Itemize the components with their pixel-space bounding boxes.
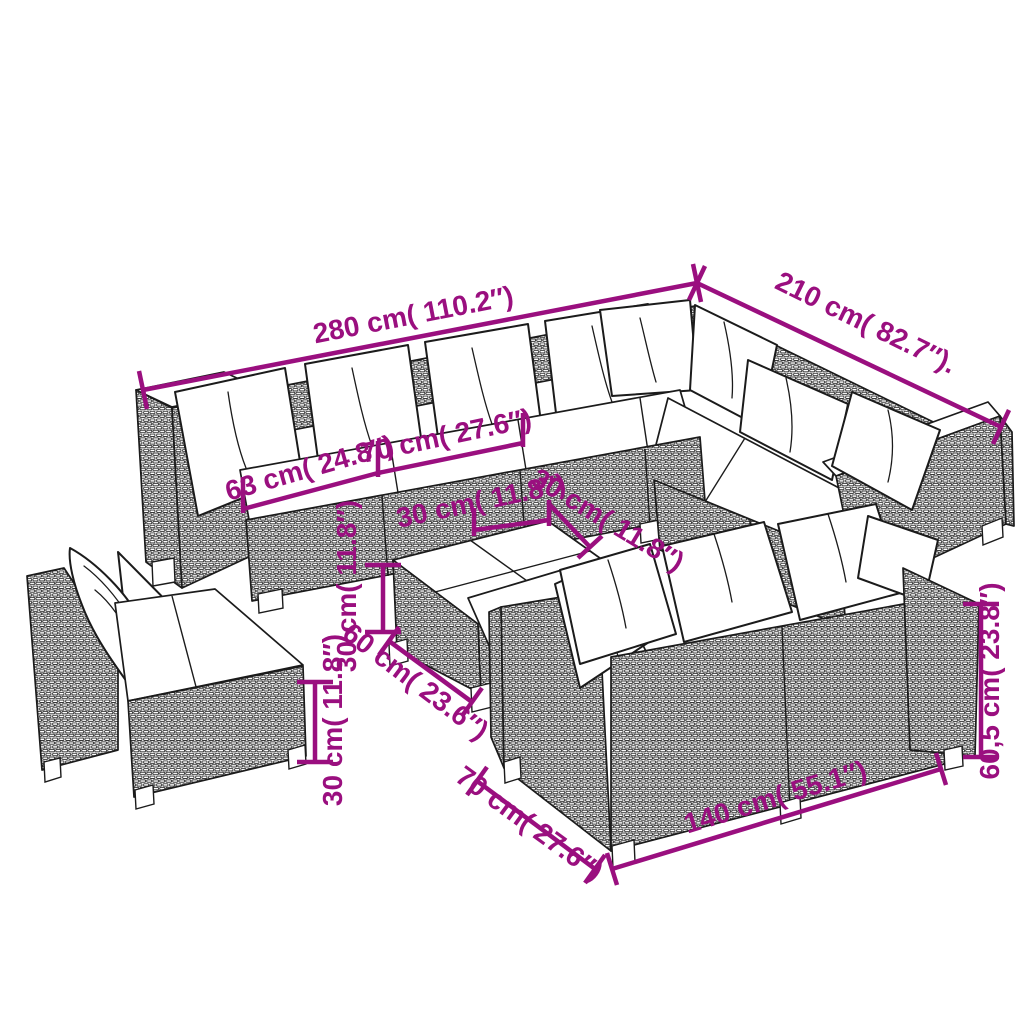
sofa-foot xyxy=(258,589,283,613)
dimension-diagram-page: 280 cm( 110.2″) 210 cm( 82.7″). 63 cm( 2… xyxy=(0,0,1024,1024)
chair-foot xyxy=(135,785,154,809)
bottom-sofa-end-panel xyxy=(903,568,979,756)
chair-foot xyxy=(288,745,306,769)
dimension-diagram: 280 cm( 110.2″) 210 cm( 82.7″). 63 cm( 2… xyxy=(0,0,1024,1024)
dimension-ottoman-height-label: 30 cm( 11.8″) xyxy=(317,634,348,806)
chair-foot xyxy=(44,758,61,782)
sofa-foot xyxy=(504,757,521,783)
sofa-foot xyxy=(944,746,963,770)
sofa-foot xyxy=(152,558,175,586)
dimension-sofa-height-label: 60,5 cm( 23.8″) xyxy=(974,582,1005,779)
